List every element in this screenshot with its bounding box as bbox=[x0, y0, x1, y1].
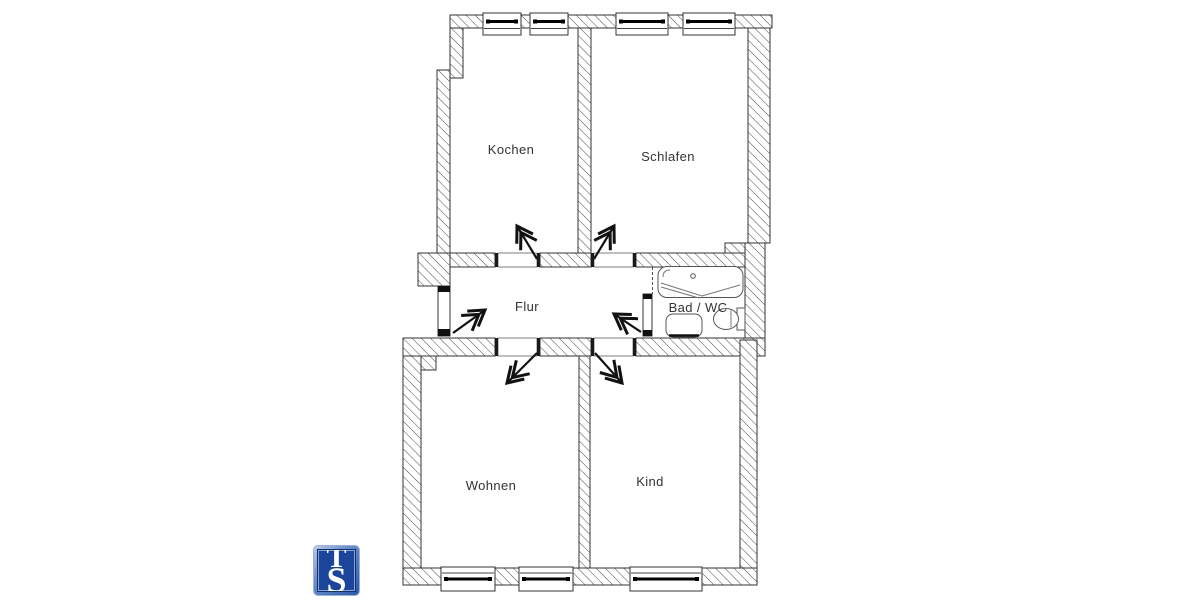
wall-right-lower bbox=[740, 340, 757, 568]
door-swing-wohnen-icon bbox=[507, 353, 537, 383]
door-opening-wohnen bbox=[498, 338, 537, 356]
door-swings bbox=[453, 226, 641, 383]
wall-right-mid bbox=[745, 243, 765, 340]
room-label-kochen: Kochen bbox=[488, 142, 535, 157]
bad-door bbox=[643, 267, 653, 336]
wall-right-upper bbox=[748, 28, 770, 243]
door-opening-kind bbox=[594, 338, 633, 356]
door-opening-schlafen bbox=[594, 253, 633, 267]
window-kind bbox=[630, 567, 702, 591]
floor-plan-canvas: Kochen Schlafen Flur Bad / WC Wohnen Kin… bbox=[0, 0, 1200, 600]
door-opening-kochen bbox=[498, 253, 537, 267]
room-label-flur: Flur bbox=[515, 299, 539, 314]
wall-mid-kochen-schlafen bbox=[578, 28, 591, 253]
floor-plan-drawing: Kochen Schlafen Flur Bad / WC Wohnen Kin… bbox=[0, 0, 1200, 600]
room-label-kind: Kind bbox=[636, 474, 664, 489]
wall-pier bbox=[421, 356, 436, 370]
wall-flur-top-1 bbox=[450, 253, 495, 267]
room-label-bad-wc: Bad / WC bbox=[669, 300, 728, 315]
bathtub-icon bbox=[658, 267, 743, 299]
window-wohnen-2 bbox=[519, 567, 573, 591]
wall-flur-top-2 bbox=[540, 253, 591, 267]
wall-flur-bottom-1 bbox=[403, 338, 495, 356]
wall-left-upper-b bbox=[437, 70, 450, 253]
wall-left-block bbox=[418, 253, 450, 286]
ts-logo-panel: T S bbox=[317, 549, 356, 592]
window-schlafen-2 bbox=[683, 13, 735, 35]
door-swing-entry-icon bbox=[453, 310, 485, 333]
window-kochen-1 bbox=[483, 13, 521, 35]
wall-flur-bottom-2 bbox=[540, 338, 591, 356]
ts-logo-letter-s: S bbox=[318, 562, 355, 592]
room-label-schlafen: Schlafen bbox=[641, 149, 695, 164]
entry-door bbox=[438, 286, 450, 336]
ts-logo: T S bbox=[314, 546, 359, 595]
sink-icon bbox=[666, 314, 702, 337]
window-kochen-2 bbox=[530, 13, 568, 35]
window-wohnen-1 bbox=[441, 567, 495, 591]
door-swing-kind-icon bbox=[595, 353, 622, 383]
room-label-wohnen: Wohnen bbox=[466, 478, 517, 493]
window-schlafen-1 bbox=[616, 13, 668, 35]
door-swing-bad-icon bbox=[614, 314, 641, 332]
wall-mid-wohnen-kind bbox=[579, 356, 590, 568]
wall-left-lower bbox=[403, 338, 421, 568]
wall-left-upper-a bbox=[450, 28, 463, 78]
